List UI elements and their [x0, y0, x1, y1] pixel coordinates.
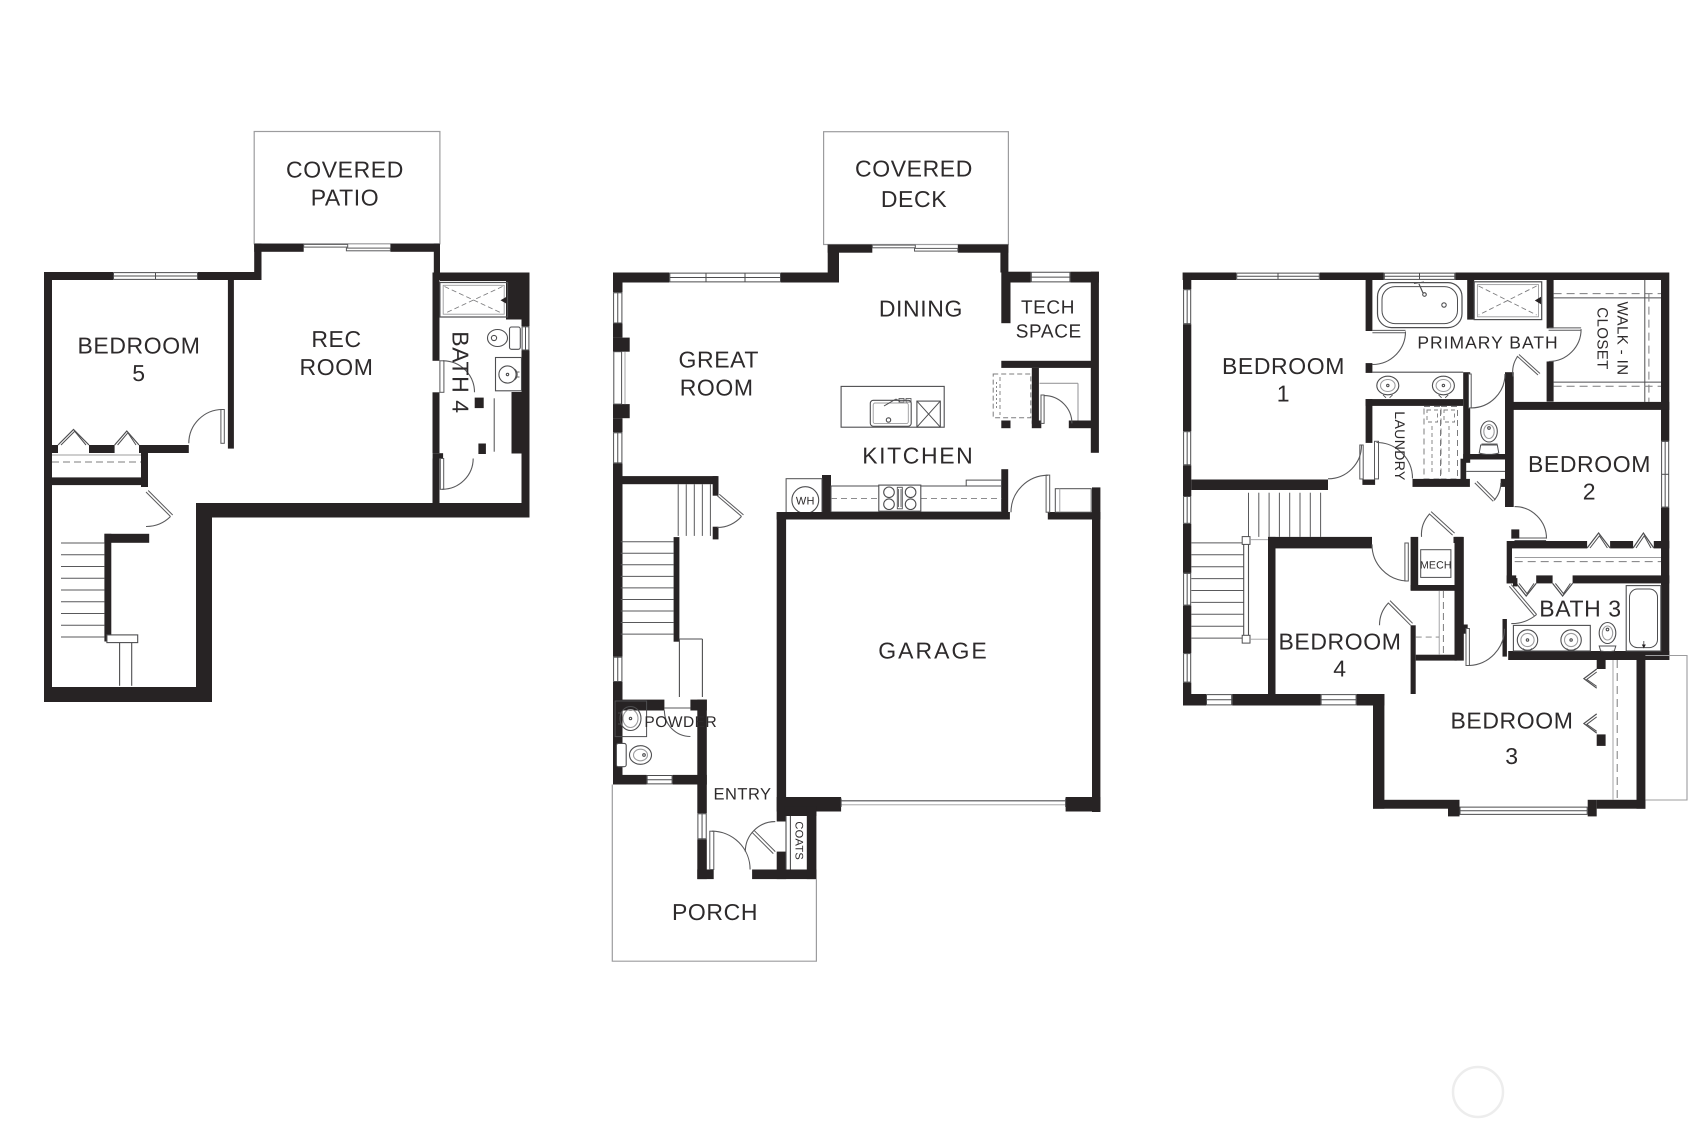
- svg-text:COATS: COATS: [793, 821, 805, 860]
- svg-text:SPACE: SPACE: [1016, 322, 1082, 343]
- svg-text:BEDROOM: BEDROOM: [1278, 629, 1401, 655]
- svg-text:PORCH: PORCH: [672, 899, 758, 925]
- svg-text:KITCHEN: KITCHEN: [862, 443, 974, 469]
- svg-text:1: 1: [1277, 381, 1290, 407]
- svg-text:CLOSET: CLOSET: [1593, 307, 1610, 369]
- svg-text:BEDROOM: BEDROOM: [1222, 353, 1345, 379]
- svg-text:BATH 3: BATH 3: [1539, 596, 1621, 622]
- svg-text:MECH: MECH: [1420, 560, 1452, 572]
- svg-text:GARAGE: GARAGE: [878, 638, 988, 664]
- svg-text:PRIMARY BATH: PRIMARY BATH: [1417, 333, 1558, 353]
- svg-text:COVERED: COVERED: [286, 157, 404, 183]
- svg-text:5: 5: [132, 360, 145, 386]
- svg-text:REC: REC: [311, 326, 361, 352]
- svg-text:GREAT: GREAT: [679, 347, 760, 373]
- svg-text:POWDER: POWDER: [644, 714, 717, 731]
- svg-text:BEDROOM: BEDROOM: [1528, 451, 1651, 477]
- svg-text:ENTRY: ENTRY: [713, 786, 771, 804]
- svg-text:COVERED: COVERED: [855, 156, 973, 182]
- svg-text:4: 4: [1333, 656, 1346, 682]
- svg-text:3: 3: [1505, 743, 1518, 769]
- svg-text:WH: WH: [796, 495, 815, 507]
- svg-text:ROOM: ROOM: [300, 354, 374, 380]
- svg-text:ROOM: ROOM: [680, 375, 754, 401]
- svg-text:BEDROOM: BEDROOM: [1450, 708, 1573, 734]
- svg-text:PATIO: PATIO: [311, 185, 380, 211]
- svg-text:2: 2: [1583, 479, 1596, 505]
- svg-text:DECK: DECK: [881, 186, 947, 212]
- svg-text:LAUNDRY: LAUNDRY: [1392, 411, 1408, 481]
- svg-text:BEDROOM: BEDROOM: [77, 333, 200, 359]
- svg-text:DINING: DINING: [879, 295, 963, 321]
- svg-text:WALK - IN: WALK - IN: [1614, 302, 1631, 376]
- svg-text:TECH: TECH: [1021, 298, 1075, 319]
- svg-text:BATH 4: BATH 4: [448, 331, 474, 413]
